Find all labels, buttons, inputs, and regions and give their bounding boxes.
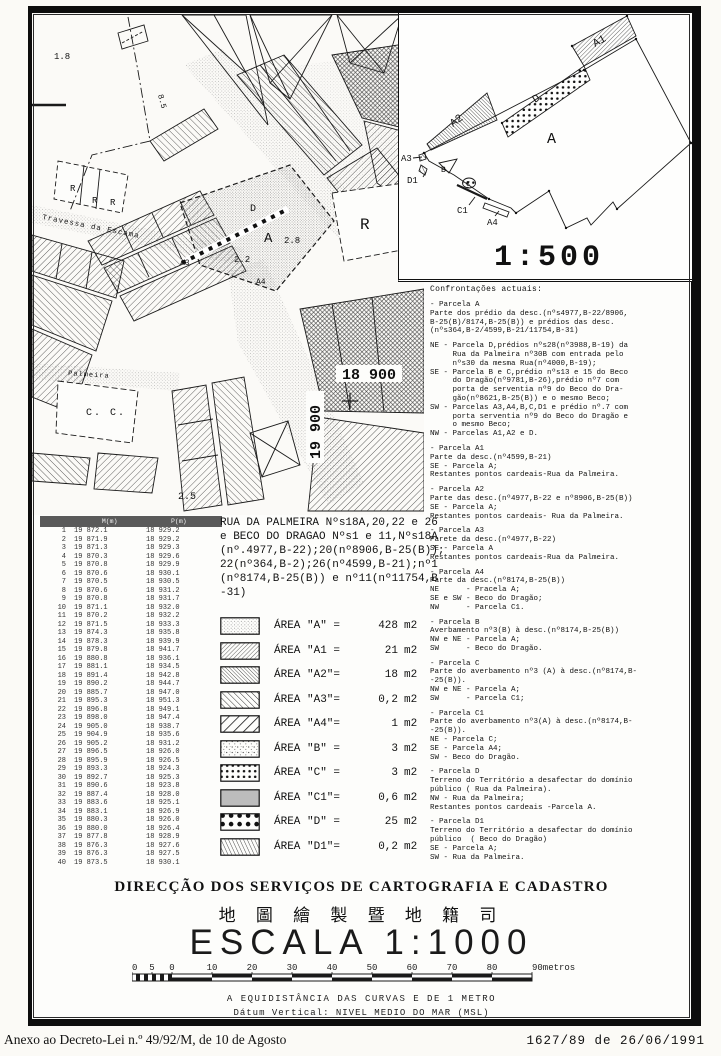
table-row: 1319 874.318 935.8 [40, 629, 222, 638]
confrontation-block: - Parcela A4 Parte da desc.(nº8174,B-25(… [430, 569, 686, 613]
table-row: 3019 892.718 925.3 [40, 774, 222, 783]
table-cell: 18 924.3 [146, 765, 218, 774]
legend-swatch-c [220, 764, 260, 782]
table-cell: 18 929.2 [146, 536, 218, 545]
table-row: 819 870.618 931.2 [40, 587, 222, 596]
legend-label: ÁREA "A2"= [274, 669, 366, 681]
table-cell: 4 [40, 553, 74, 562]
table-row: 2219 896.818 949.1 [40, 706, 222, 715]
table-cell: 19 896.5 [74, 748, 146, 757]
scalebar-label: 50 [367, 963, 378, 973]
scalebar-bar [132, 972, 532, 981]
table-cell: 10 [40, 604, 74, 613]
inset-label-d1: D1 [407, 176, 418, 186]
table-cell: 18 926.9 [146, 808, 218, 817]
legend-value: 21 [366, 645, 398, 657]
table-cell: 19 871.1 [74, 604, 146, 613]
table-cell: 2 [40, 536, 74, 545]
table-cell: 18 942.8 [146, 672, 218, 681]
table-cell: 18 944.7 [146, 680, 218, 689]
legend-item-c: ÁREA "C" =3m2 [220, 761, 426, 786]
table-cell: 17 [40, 663, 74, 672]
inset-scale-label: 1:500 [494, 241, 604, 275]
scalebar-labels: 1050102030405060708090metros [132, 963, 575, 973]
table-cell: 19 905.2 [74, 740, 146, 749]
table-cell: 18 947.4 [146, 714, 218, 723]
table-cell: 3 [40, 544, 74, 553]
inset-parcels-diagram: A A1 A2 D A3 D1 B C C1 A4 1:500 [399, 13, 692, 279]
map-label-r-2: R [92, 196, 98, 206]
area-legend: ÁREA "A" =428m2ÁREA "A1 =21m2ÁREA "A2"=1… [220, 614, 426, 859]
table-row: 2719 896.518 926.0 [40, 748, 222, 757]
equidistance-note: A EQUIDISTÂNCIA DAS CURVAS E DE 1 METRO [32, 994, 691, 1004]
table-row: 1219 871.518 933.3 [40, 621, 222, 630]
table-cell: 18 928.9 [146, 833, 218, 842]
confrontation-block: - Parcela B Averbamento nº3(B) à desc.(n… [430, 619, 686, 654]
sheet-frame: 18 900 19 900 1.8 8.5 Travessa da Escama… [28, 6, 701, 1026]
inset-label-a4: A4 [487, 218, 498, 228]
property-title: RUA DA PALMEIRA Nºs18A,20,22 e 26 e BECO… [220, 516, 426, 600]
table-cell: 19 898.0 [74, 714, 146, 723]
table-cell: 11 [40, 612, 74, 621]
legend-value: 428 [366, 620, 398, 632]
table-cell: 19 878.3 [74, 638, 146, 647]
coordinates-table: M(m) P(m) 119 872.118 929.2219 871.918 9… [40, 516, 222, 867]
inset-label-c: C [466, 181, 470, 189]
table-row: 3719 877.818 928.9 [40, 833, 222, 842]
table-cell: 19 870.8 [74, 561, 146, 570]
coordinate-table-body: 119 872.118 929.2219 871.918 929.2319 87… [40, 527, 222, 867]
legend-item-a: ÁREA "A" =428m2 [220, 614, 426, 639]
table-cell: 25 [40, 731, 74, 740]
table-cell: 39 [40, 850, 74, 859]
table-cell: 29 [40, 765, 74, 774]
table-cell: 19 893.3 [74, 765, 146, 774]
table-row: 3819 876.318 927.6 [40, 842, 222, 851]
annex-note: Anexo ao Decreto-Lei n.º 49/92/M, de 10 … [4, 1032, 286, 1048]
table-cell: 18 929.3 [146, 544, 218, 553]
legend-item-a2: ÁREA "A2"=18m2 [220, 663, 426, 688]
table-cell: 22 [40, 706, 74, 715]
legend-unit: m2 [404, 694, 417, 706]
table-cell: 15 [40, 646, 74, 655]
table-cell: 18 930.1 [146, 859, 218, 868]
legend-swatch-c1 [220, 789, 260, 807]
table-cell: 27 [40, 748, 74, 757]
table-cell: 18 929.9 [146, 561, 218, 570]
legend-swatch-d1 [220, 838, 260, 856]
legend-value: 0,2 [366, 841, 398, 853]
table-row: 3419 883.118 926.9 [40, 808, 222, 817]
table-cell: 8 [40, 587, 74, 596]
table-row: 2619 905.218 931.2 [40, 740, 222, 749]
table-cell: 19 874.3 [74, 629, 146, 638]
inset-label-c1: C1 [457, 206, 468, 216]
table-row: 1719 881.118 934.5 [40, 663, 222, 672]
table-cell: 19 904.9 [74, 731, 146, 740]
table-cell: 12 [40, 621, 74, 630]
table-cell: 18 933.3 [146, 621, 218, 630]
org-name-portuguese: DIRECÇÃO DOS SERVIÇOS DE CARTOGRAFIA E C… [32, 879, 691, 896]
table-row: 1019 871.118 932.0 [40, 604, 222, 613]
table-cell: 18 926.0 [146, 816, 218, 825]
confrontations-title: Confrontações actuais: [430, 285, 686, 294]
table-cell: 18 925.3 [146, 774, 218, 783]
confrontation-block: - Parcela D Terreno do Território a desa… [430, 768, 686, 812]
legend-item-a1: ÁREA "A1 =21m2 [220, 639, 426, 664]
table-cell: 6 [40, 570, 74, 579]
table-row: 2519 904.918 935.6 [40, 731, 222, 740]
scalebar-label: 90metros [532, 963, 575, 973]
legend-item-d: ÁREA "D" =25m2 [220, 810, 426, 835]
table-row: 3119 890.618 923.8 [40, 782, 222, 791]
table-cell: 1 [40, 527, 74, 536]
table-cell: 18 926.5 [146, 757, 218, 766]
table-row: 1619 880.818 936.1 [40, 655, 222, 664]
legend-swatch-b [220, 740, 260, 758]
datum-note: Dátum Vertical: NIVEL MEDIO DO MAR (MSL) [32, 1008, 691, 1018]
table-row: 1819 891.418 942.8 [40, 672, 222, 681]
legend-swatch-d [220, 813, 260, 831]
table-row: 4019 873.518 930.1 [40, 859, 222, 868]
table-cell: 18 930.1 [146, 570, 218, 579]
table-row: 3619 880.018 926.4 [40, 825, 222, 834]
table-row: 2919 893.318 924.3 [40, 765, 222, 774]
coordinate-table-header: M(m) P(m) [40, 516, 222, 527]
table-cell: 18 926.0 [146, 748, 218, 757]
map-spot-height-2-8: 2.8 [284, 236, 300, 246]
table-cell: 20 [40, 689, 74, 698]
confrontation-block: - Parcela A1 Parte da desc.(nº4599,B-21)… [430, 445, 686, 480]
table-cell: 19 870.6 [74, 587, 146, 596]
legend-value: 25 [366, 816, 398, 828]
map-label-parcel-a4: A4 [256, 278, 266, 287]
legend-item-c1: ÁREA "C1"=0,6m2 [220, 786, 426, 811]
table-cell: 19 876.3 [74, 850, 146, 859]
table-cell: 19 870.2 [74, 612, 146, 621]
table-cell: 19 870.3 [74, 553, 146, 562]
table-row: 119 872.118 929.2 [40, 527, 222, 536]
scalebar-label: 60 [407, 963, 418, 973]
table-cell: 18 928.0 [146, 791, 218, 800]
table-cell: 18 931.2 [146, 740, 218, 749]
table-cell: 5 [40, 561, 74, 570]
scalebar-label: 5 [149, 963, 154, 973]
confrontations-column: Confrontações actuais: - Parcela A Parte… [430, 285, 686, 868]
legend-label: ÁREA "B" = [274, 743, 366, 755]
table-cell: 19 870.5 [74, 578, 146, 587]
map-label-parcel-a3: A3 [180, 259, 190, 268]
inset-label-b: B [441, 166, 446, 175]
scalebar-label: 10 [132, 963, 137, 973]
table-cell: 19 873.5 [74, 859, 146, 868]
legend-swatch-a1 [220, 642, 260, 660]
scalebar-label: 10 [207, 963, 218, 973]
table-cell: 19 877.8 [74, 833, 146, 842]
table-cell: 19 [40, 680, 74, 689]
table-cell: 16 [40, 655, 74, 664]
legend-swatch-a3 [220, 691, 260, 709]
cadastral-plan-sheet: 18 900 19 900 1.8 8.5 Travessa da Escama… [0, 0, 721, 1056]
table-row: 919 870.818 931.7 [40, 595, 222, 604]
table-cell: 14 [40, 638, 74, 647]
map-spot-height-2-5: 2.5 [178, 492, 196, 503]
scale-bar: 1050102030405060708090metros [132, 961, 602, 991]
confrontation-block: - Parcela C Parte do averbamento nº3 (A)… [430, 660, 686, 704]
table-cell: 18 931.2 [146, 587, 218, 596]
map-label-cc: C. C. [86, 408, 126, 419]
table-cell: 18 [40, 672, 74, 681]
table-cell: 13 [40, 629, 74, 638]
scale-text: ESCALA 1:1000 [32, 923, 691, 963]
confrontation-block: - Parcela A3 Parete da desc.(nº4977,B-22… [430, 527, 686, 562]
table-row: 1419 878.318 939.9 [40, 638, 222, 647]
inset-labels: A A1 A2 D A3 D1 B C C1 A4 1:500 [401, 33, 609, 275]
table-row: 3919 876.318 927.5 [40, 850, 222, 859]
col-header-p: P(m) [171, 516, 187, 527]
legend-unit: m2 [404, 841, 417, 853]
table-cell: 18 927.5 [146, 850, 218, 859]
map-label-parcel-a: A [264, 231, 273, 247]
table-cell: 18 931.7 [146, 595, 218, 604]
table-row: 2319 898.018 947.4 [40, 714, 222, 723]
scalebar-label: 30 [287, 963, 298, 973]
inset-label-a3: A3 [401, 154, 412, 164]
legend-unit: m2 [404, 743, 417, 755]
table-row: 419 870.318 929.6 [40, 553, 222, 562]
table-cell: 36 [40, 825, 74, 834]
table-cell: 18 925.1 [146, 799, 218, 808]
map-spot-height-1-8: 1.8 [54, 52, 70, 62]
legend-value: 18 [366, 669, 398, 681]
table-row: 1119 870.218 932.2 [40, 612, 222, 621]
table-cell: 19 895.9 [74, 757, 146, 766]
table-cell: 19 890.2 [74, 680, 146, 689]
table-cell: 19 871.5 [74, 621, 146, 630]
confrontation-block: NE - Parcela D,prédios nºs28(nº3988,B-19… [430, 342, 686, 439]
scalebar-label: 70 [447, 963, 458, 973]
table-row: 2019 885.718 947.0 [40, 689, 222, 698]
legend-label: ÁREA "A4"= [274, 718, 366, 730]
confrontation-block: - Parcela A2 Parte das desc.(nº4977,B-22… [430, 486, 686, 521]
confrontation-block: - Parcela D1 Terreno do Território a des… [430, 818, 686, 862]
table-cell: 19 871.3 [74, 544, 146, 553]
legend-unit: m2 [404, 620, 417, 632]
table-cell: 19 883.6 [74, 799, 146, 808]
table-cell: 30 [40, 774, 74, 783]
table-row: 619 870.618 930.1 [40, 570, 222, 579]
table-cell: 18 949.1 [146, 706, 218, 715]
table-cell: 19 883.1 [74, 808, 146, 817]
table-cell: 33 [40, 799, 74, 808]
table-cell: 23 [40, 714, 74, 723]
table-cell: 19 891.4 [74, 672, 146, 681]
map-label-r-3: R [110, 198, 116, 208]
legend-item-a4: ÁREA "A4"=1m2 [220, 712, 426, 737]
legend-value: 0,2 [366, 694, 398, 706]
table-row: 3219 887.418 928.0 [40, 791, 222, 800]
legend-item-d1: ÁREA "D1"=0,2m2 [220, 835, 426, 860]
legend-label: ÁREA "D1"= [274, 841, 366, 853]
table-cell: 9 [40, 595, 74, 604]
table-cell: 18 929.6 [146, 553, 218, 562]
legend-value: 3 [366, 743, 398, 755]
table-cell: 19 895.3 [74, 697, 146, 706]
table-cell: 34 [40, 808, 74, 817]
table-cell: 18 930.5 [146, 578, 218, 587]
scalebar-label: 40 [327, 963, 338, 973]
table-cell: 18 932.2 [146, 612, 218, 621]
inset-panel: A A1 A2 D A3 D1 B C C1 A4 1:500 [398, 13, 692, 282]
table-cell: 18 926.4 [146, 825, 218, 834]
table-cell: 19 896.8 [74, 706, 146, 715]
table-cell: 18 939.9 [146, 638, 218, 647]
inset-label-a: A [547, 131, 556, 148]
confrontacoes-blocks: - Parcela A Parte dos prédio da desc.(nº… [430, 301, 686, 862]
table-row: 519 870.818 929.9 [40, 561, 222, 570]
table-cell: 19 870.6 [74, 570, 146, 579]
map-label-grid-19900: 19 900 [308, 405, 325, 459]
table-cell: 32 [40, 791, 74, 800]
table-cell: 40 [40, 859, 74, 868]
legend-value: 0,6 [366, 792, 398, 804]
table-cell: 19 872.1 [74, 527, 146, 536]
scalebar-label: 20 [247, 963, 258, 973]
legend-unit: m2 [404, 718, 417, 730]
col-header-m: M(m) [102, 516, 118, 527]
table-cell: 19 905.0 [74, 723, 146, 732]
table-cell: 21 [40, 697, 74, 706]
parcel-d1-shape [419, 165, 427, 175]
table-cell: 18 932.0 [146, 604, 218, 613]
table-cell: 18 935.6 [146, 731, 218, 740]
table-cell: 38 [40, 842, 74, 851]
legend-unit: m2 [404, 792, 417, 804]
map-spot-height-2-2: 2.2 [234, 255, 250, 265]
table-cell: 18 941.7 [146, 646, 218, 655]
table-cell: 19 879.8 [74, 646, 146, 655]
table-cell: 19 870.8 [74, 595, 146, 604]
table-cell: 19 881.1 [74, 663, 146, 672]
legend-label: ÁREA "C" = [274, 767, 366, 779]
table-row: 319 871.318 929.3 [40, 544, 222, 553]
legend-unit: m2 [404, 669, 417, 681]
map-label-r-1: R [70, 184, 76, 194]
table-cell: 7 [40, 578, 74, 587]
table-cell: 19 885.7 [74, 689, 146, 698]
map-label-grid-18900: 18 900 [342, 367, 396, 384]
table-cell: 18 947.0 [146, 689, 218, 698]
cadastral-map: 18 900 19 900 1.8 8.5 Travessa da Escama… [32, 13, 424, 515]
confrontation-block: - Parcela A Parte dos prédio da desc.(nº… [430, 301, 686, 336]
table-cell: 18 935.8 [146, 629, 218, 638]
legend-value: 3 [366, 767, 398, 779]
parcel-d-shape [502, 66, 590, 137]
table-cell: 19 880.0 [74, 825, 146, 834]
legend-label: ÁREA "C1"= [274, 792, 366, 804]
legend-label: ÁREA "A" = [274, 620, 366, 632]
legend-label: ÁREA "A3"= [274, 694, 366, 706]
table-cell: 18 927.6 [146, 842, 218, 851]
table-row: 1519 879.818 941.7 [40, 646, 222, 655]
table-cell: 19 887.4 [74, 791, 146, 800]
table-row: 1919 890.218 944.7 [40, 680, 222, 689]
table-cell: 19 876.3 [74, 842, 146, 851]
table-row: 719 870.518 930.5 [40, 578, 222, 587]
table-row: 2119 895.318 951.3 [40, 697, 222, 706]
legend-label: ÁREA "D" = [274, 816, 366, 828]
table-cell: 18 936.1 [146, 655, 218, 664]
table-cell: 19 892.7 [74, 774, 146, 783]
table-row: 2419 905.018 938.7 [40, 723, 222, 732]
map-label-parcel-d: D [250, 204, 256, 215]
table-cell: 37 [40, 833, 74, 842]
legend-unit: m2 [404, 816, 417, 828]
table-cell: 18 923.8 [146, 782, 218, 791]
table-row: 3519 880.318 926.0 [40, 816, 222, 825]
legend-item-b: ÁREA "B" =3m2 [220, 737, 426, 762]
legend-swatch-a4 [220, 715, 260, 733]
table-cell: 31 [40, 782, 74, 791]
table-cell: 35 [40, 816, 74, 825]
table-cell: 18 934.5 [146, 663, 218, 672]
middle-column: RUA DA PALMEIRA Nºs18A,20,22 e 26 e BECO… [220, 516, 426, 859]
table-cell: 18 929.2 [146, 527, 218, 536]
scalebar-label: 0 [169, 963, 174, 973]
legend-swatch-a [220, 617, 260, 635]
table-cell: 19 880.3 [74, 816, 146, 825]
table-cell: 18 951.3 [146, 697, 218, 706]
table-cell: 19 890.6 [74, 782, 146, 791]
legend-value: 1 [366, 718, 398, 730]
table-row: 2819 895.918 926.5 [40, 757, 222, 766]
table-cell: 18 938.7 [146, 723, 218, 732]
legend-swatch-a2 [220, 666, 260, 684]
legend-unit: m2 [404, 767, 417, 779]
table-row: 3319 883.618 925.1 [40, 799, 222, 808]
legend-item-a3: ÁREA "A3"=0,2m2 [220, 688, 426, 713]
table-cell: 26 [40, 740, 74, 749]
scalebar-label: 80 [487, 963, 498, 973]
confrontation-block: - Parcela C1 Parte do averbamento nº3(A)… [430, 710, 686, 763]
table-cell: 19 871.9 [74, 536, 146, 545]
map-label-r-4: R [360, 216, 370, 234]
table-cell: 28 [40, 757, 74, 766]
table-cell: 24 [40, 723, 74, 732]
legend-label: ÁREA "A1 = [274, 645, 366, 657]
table-row: 219 871.918 929.2 [40, 536, 222, 545]
table-cell: 19 880.8 [74, 655, 146, 664]
process-reference: 1627/89 de 26/06/1991 [526, 1034, 705, 1048]
legend-unit: m2 [404, 645, 417, 657]
